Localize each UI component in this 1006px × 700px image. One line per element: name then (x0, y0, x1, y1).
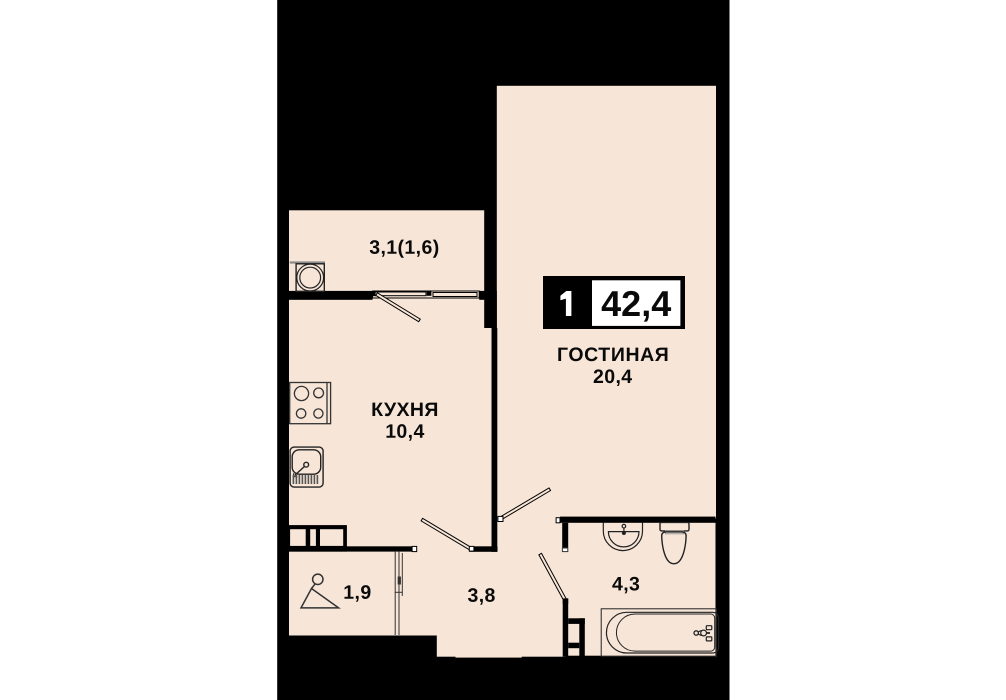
svg-text:КУХНЯ: КУХНЯ (371, 399, 439, 421)
svg-text:4,3: 4,3 (612, 573, 640, 595)
svg-text:10,4: 10,4 (385, 421, 425, 443)
svg-text:ГОСТИНАЯ: ГОСТИНАЯ (557, 344, 669, 366)
svg-text:3,1(1,6): 3,1(1,6) (369, 237, 439, 259)
svg-text:1,9: 1,9 (343, 582, 371, 604)
svg-text:3,8: 3,8 (467, 585, 495, 607)
svg-text:42,4: 42,4 (601, 283, 671, 324)
svg-text:20,4: 20,4 (593, 366, 633, 388)
